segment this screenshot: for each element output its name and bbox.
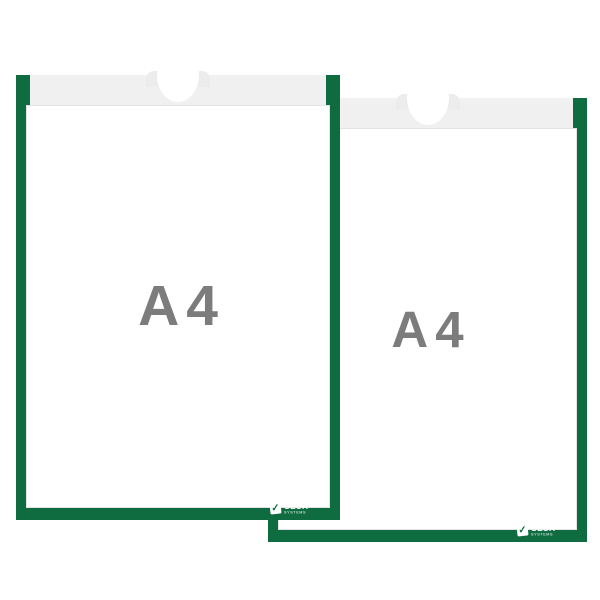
- sesa-logo: ✓ SESA SYSTEMS: [517, 523, 567, 538]
- brand-subtitle: SYSTEMS: [531, 533, 553, 535]
- document-pocket-front: ✓ SESA SYSTEMS A4: [16, 75, 340, 520]
- brand-name: SESA: [284, 503, 320, 511]
- paper-insert: A4: [26, 105, 330, 508]
- brand-name: SESA: [531, 525, 567, 533]
- brand-subtitle: SYSTEMS: [284, 511, 306, 513]
- sesa-check-icon: ✓: [517, 524, 529, 536]
- product-image-canvas: ✓ SESA SYSTEMS A4 ✓ SESA SYSTEMS: [0, 0, 600, 600]
- sesa-check-icon: ✓: [270, 502, 282, 514]
- size-label: A4: [131, 278, 225, 335]
- sesa-logo-text: SESA SYSTEMS: [531, 525, 567, 537]
- thumb-notch: [407, 71, 449, 125]
- size-label: A4: [384, 304, 470, 355]
- sesa-logo: ✓ SESA SYSTEMS: [270, 501, 320, 516]
- sesa-logo-text: SESA SYSTEMS: [284, 503, 320, 515]
- thumb-notch: [157, 48, 199, 102]
